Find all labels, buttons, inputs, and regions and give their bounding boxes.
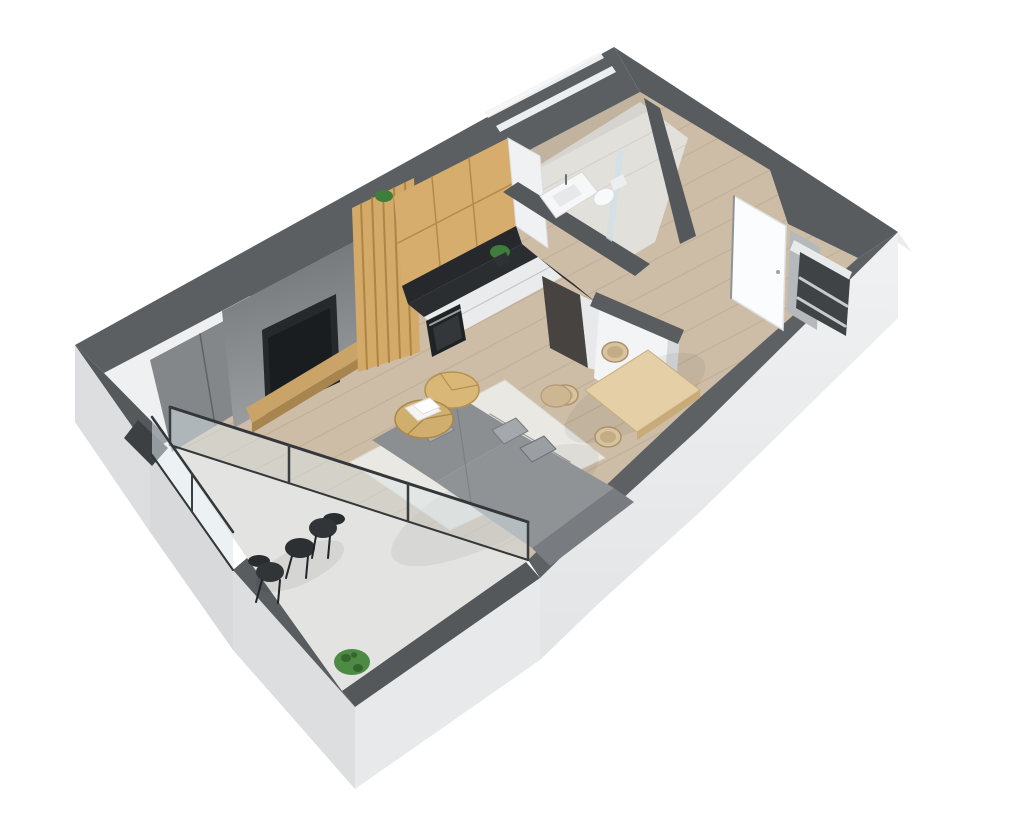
- balcony-plant-shade: [341, 654, 351, 662]
- floorplan-canvas: [0, 0, 1033, 826]
- balcony-plant-shade: [353, 664, 363, 672]
- balcony-chair: [309, 518, 337, 538]
- balcony-table: [285, 538, 315, 558]
- dining-chair-seat: [607, 346, 623, 358]
- pouf: [541, 385, 571, 407]
- apartment-render: [33, 0, 1033, 789]
- dining-chair-seat: [600, 431, 616, 443]
- floorplan-page: [0, 0, 1033, 826]
- balcony-chair: [256, 562, 284, 582]
- plant-on-slats: [375, 190, 393, 202]
- entrance-door-handle: [776, 270, 780, 274]
- balcony-plant-shade: [351, 652, 357, 658]
